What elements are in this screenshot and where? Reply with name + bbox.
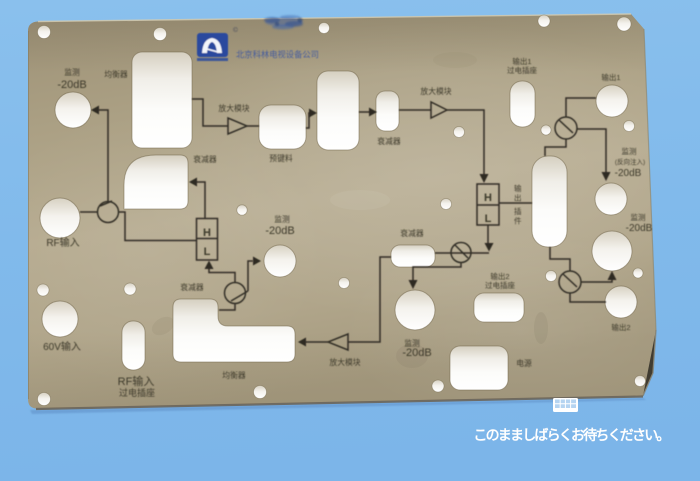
svg-text:输出2: 输出2 [490, 271, 509, 281]
svg-text:衰减器: 衰减器 [193, 154, 217, 164]
svg-text:均衡器: 均衡器 [104, 69, 128, 79]
svg-text:过电插座: 过电插座 [485, 280, 515, 290]
svg-text:H: H [203, 227, 211, 239]
svg-text:北京科林电视设备公司: 北京科林电视设备公司 [236, 50, 319, 60]
svg-text:60V输入: 60V输入 [43, 340, 81, 353]
svg-text:输出1: 输出1 [512, 56, 531, 66]
svg-text:输: 输 [514, 183, 522, 193]
svg-text:放大模块: 放大模块 [218, 103, 249, 113]
svg-text:出: 出 [514, 193, 522, 203]
svg-text:-20dB: -20dB [265, 225, 294, 237]
svg-text:L: L [485, 213, 492, 225]
svg-text:-20dB: -20dB [626, 223, 653, 234]
svg-text:输出2: 输出2 [611, 322, 630, 332]
svg-text:输出1: 输出1 [601, 72, 620, 82]
svg-text:L: L [204, 246, 211, 258]
svg-text:电源: 电源 [516, 358, 532, 368]
svg-text:©: © [233, 26, 238, 34]
svg-text:RF输入: RF输入 [46, 236, 79, 249]
svg-text:监测: 监测 [631, 212, 646, 222]
svg-text:插: 插 [514, 206, 522, 216]
svg-text:过电插座: 过电插座 [119, 387, 155, 398]
svg-text:-20dB: -20dB [402, 347, 431, 359]
svg-text:过电插座: 过电插座 [507, 65, 537, 75]
svg-text:预键料: 预键料 [269, 153, 293, 163]
svg-text:监测: 监测 [274, 214, 290, 224]
svg-text:RF输入: RF输入 [118, 374, 155, 388]
svg-text:衰减器: 衰减器 [377, 136, 401, 146]
svg-text:放大模块: 放大模块 [420, 86, 451, 96]
svg-text:(反向注入): (反向注入) [615, 157, 645, 166]
svg-text:衰减器: 衰减器 [180, 282, 204, 292]
svg-text:均衡器: 均衡器 [222, 370, 246, 380]
svg-text:监测: 监测 [64, 67, 80, 77]
svg-text:-20dB: -20dB [615, 168, 642, 179]
svg-text:监测: 监测 [622, 146, 637, 156]
svg-text:件: 件 [514, 216, 522, 226]
svg-text:このまましばらくお待ちください。: このまましばらくお待ちください。 [473, 427, 668, 443]
svg-text:放大模块: 放大模块 [329, 357, 360, 367]
svg-text:-20dB: -20dB [57, 79, 86, 91]
svg-text:衰减器: 衰减器 [400, 228, 424, 238]
svg-text:H: H [484, 192, 492, 204]
